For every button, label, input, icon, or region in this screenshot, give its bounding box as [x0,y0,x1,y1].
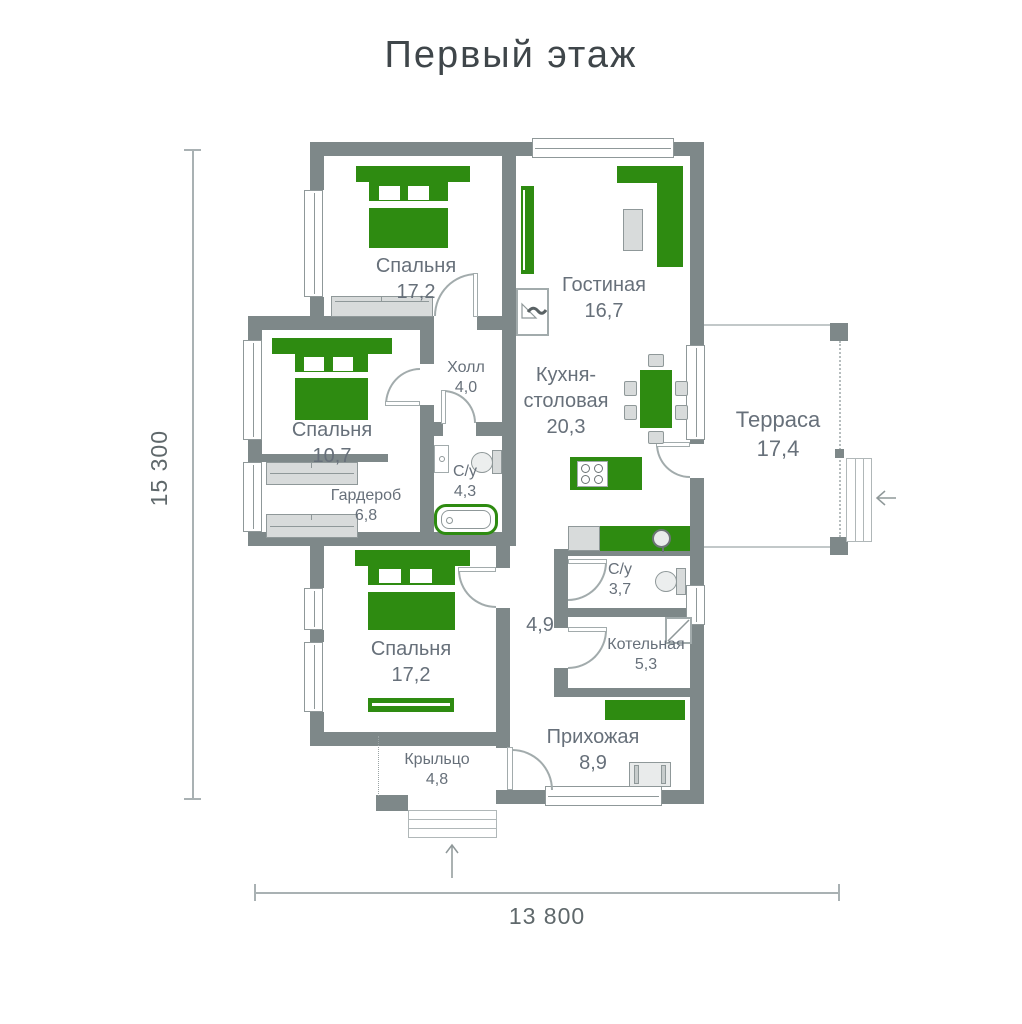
wall [690,440,704,444]
room-label-bedroom-middle: Спальня 10,7 [262,417,402,469]
room-label-living: Гостиная 16,7 [544,272,664,324]
wall [690,142,704,345]
wall [476,422,502,436]
kitchen-cabinet-icon [568,526,600,551]
wall [310,732,510,746]
bed-pillow [410,569,432,583]
wall [477,316,502,330]
terrace-door-arc [656,444,690,478]
wall [496,608,510,734]
room-area: 4,3 [454,482,476,502]
room-name: С/у [453,462,477,482]
room-name: Холл [447,358,485,378]
terrace-edge [704,546,834,548]
stove-icon [577,461,608,487]
terrace-entry-arrow-icon [872,488,898,508]
room-name: Крыльцо [404,750,469,770]
room-label-bedroom-top: Спальня 17,2 [346,253,486,305]
room-label-bedroom-bottom: Спальня 17,2 [341,636,481,688]
bed-sheet-line [368,585,455,592]
chair-icon [675,381,688,396]
door-leaf [568,627,607,632]
room-name: Гардероб [331,486,401,506]
porch-entry-arrow-icon [444,840,460,880]
dimension-tick [184,149,201,151]
door-leaf [385,401,420,406]
room-label-hall: Холл 4,0 [426,358,506,398]
wall [310,156,324,190]
room-area: 4,0 [455,378,477,398]
dimension-tick [838,884,840,901]
room-area: 8,9 [579,750,607,776]
wall [310,142,502,156]
chair-icon [648,354,664,367]
room-area: 4,8 [426,770,448,790]
room-name: Терраса [736,406,820,435]
wall [248,440,262,462]
dimension-tick [254,884,256,901]
wall [248,330,262,340]
bed-pillow [304,357,324,371]
bed-pillow [333,357,353,371]
terrace-edge [704,324,834,326]
room-label-corridor: 4,9 [510,612,570,638]
kitchen-sink-icon [652,529,671,548]
sofa-icon [657,183,683,267]
dimension-line-horizontal [255,892,840,894]
room-label-wardrobe: Гардероб 6,8 [306,486,426,526]
room-area: 10,7 [313,443,352,469]
room-label-porch: Крыльцо 4,8 [377,750,497,790]
tv-unit-icon [521,186,534,274]
dimension-height-label: 15 300 [146,430,173,506]
wall [554,608,690,617]
room-label-bathroom-1: С/у 4,3 [425,462,505,502]
room-label-kitchen: Кухня-столовая 20,3 [506,362,626,440]
room-area: 16,7 [585,298,624,324]
room-name: Спальня [376,253,456,279]
entrance-door-leaf [507,747,513,790]
wall [690,478,704,585]
porch-steps-icon [408,810,497,838]
door-arc [385,368,420,405]
wall [662,790,704,804]
wall [310,546,324,588]
room-name: Кухня-столовая [506,362,626,414]
room-area: 17,2 [392,662,431,688]
dimension-line-vertical [192,150,194,800]
sofa-icon [617,166,683,183]
wall [248,316,434,330]
room-area: 6,8 [355,506,377,526]
window [243,462,262,532]
window [243,340,262,440]
wall [496,734,510,748]
window [545,786,662,806]
window [304,190,323,297]
room-name: Прихожая [547,724,640,750]
shoe-shelf-icon [605,700,685,720]
kitchen-sink-counter-icon [600,526,690,551]
door-leaf [458,567,496,572]
bathtub-icon [434,504,498,535]
bed-pillow [379,186,400,200]
bed-pillow [408,186,429,200]
bed-icon [355,550,470,566]
room-area: 5,3 [635,655,657,675]
bed-pillow [379,569,401,583]
wall [554,556,568,600]
dining-table-icon [640,370,672,428]
wall [554,688,704,697]
door-arc [458,570,496,608]
wall [420,422,443,436]
dimension-width-label: 13 800 [447,903,647,930]
bed-icon [356,166,470,182]
room-area: 17,4 [757,435,800,464]
wall [502,142,532,156]
chair-icon [648,431,664,444]
room-area: 20,3 [547,414,586,440]
bed-icon [272,338,392,354]
room-name: С/у [608,560,632,580]
floor-plan: Спальня 17,2 Гостиная 16,7 Холл 4,0 Кухн… [0,0,1022,1024]
coffee-table-icon [623,209,643,251]
terrace-post [830,323,848,341]
bed-sheet-line [295,372,368,378]
room-label-entry-hall: Прихожая 8,9 [523,724,663,776]
wall [310,630,324,642]
window [304,642,323,712]
room-name: Спальня [371,636,451,662]
tv-console-icon [368,698,454,712]
wall [496,790,545,804]
room-area: 17,2 [397,279,436,305]
room-name: Гостиная [562,272,646,298]
terrace-steps-icon [846,458,872,542]
floor-plan-page: Первый этаж [0,0,1022,1024]
chair-icon [675,405,688,420]
room-name: Котельная [607,635,684,655]
room-label-terrace: Терраса 17,4 [708,406,848,463]
room-name: Спальня [292,417,372,443]
room-area: 3,7 [609,580,631,600]
bed-sheet-line [369,201,448,208]
room-area: 4,9 [526,612,554,638]
window [304,588,323,630]
wall [376,795,408,811]
dimension-tick [184,798,201,800]
room-label-bathroom-2: С/у 3,7 [580,560,660,600]
wall [496,532,510,568]
window [686,345,705,440]
toilet-icon [676,568,686,595]
room-label-boiler-room: Котельная 5,3 [576,635,716,675]
window [532,138,674,158]
